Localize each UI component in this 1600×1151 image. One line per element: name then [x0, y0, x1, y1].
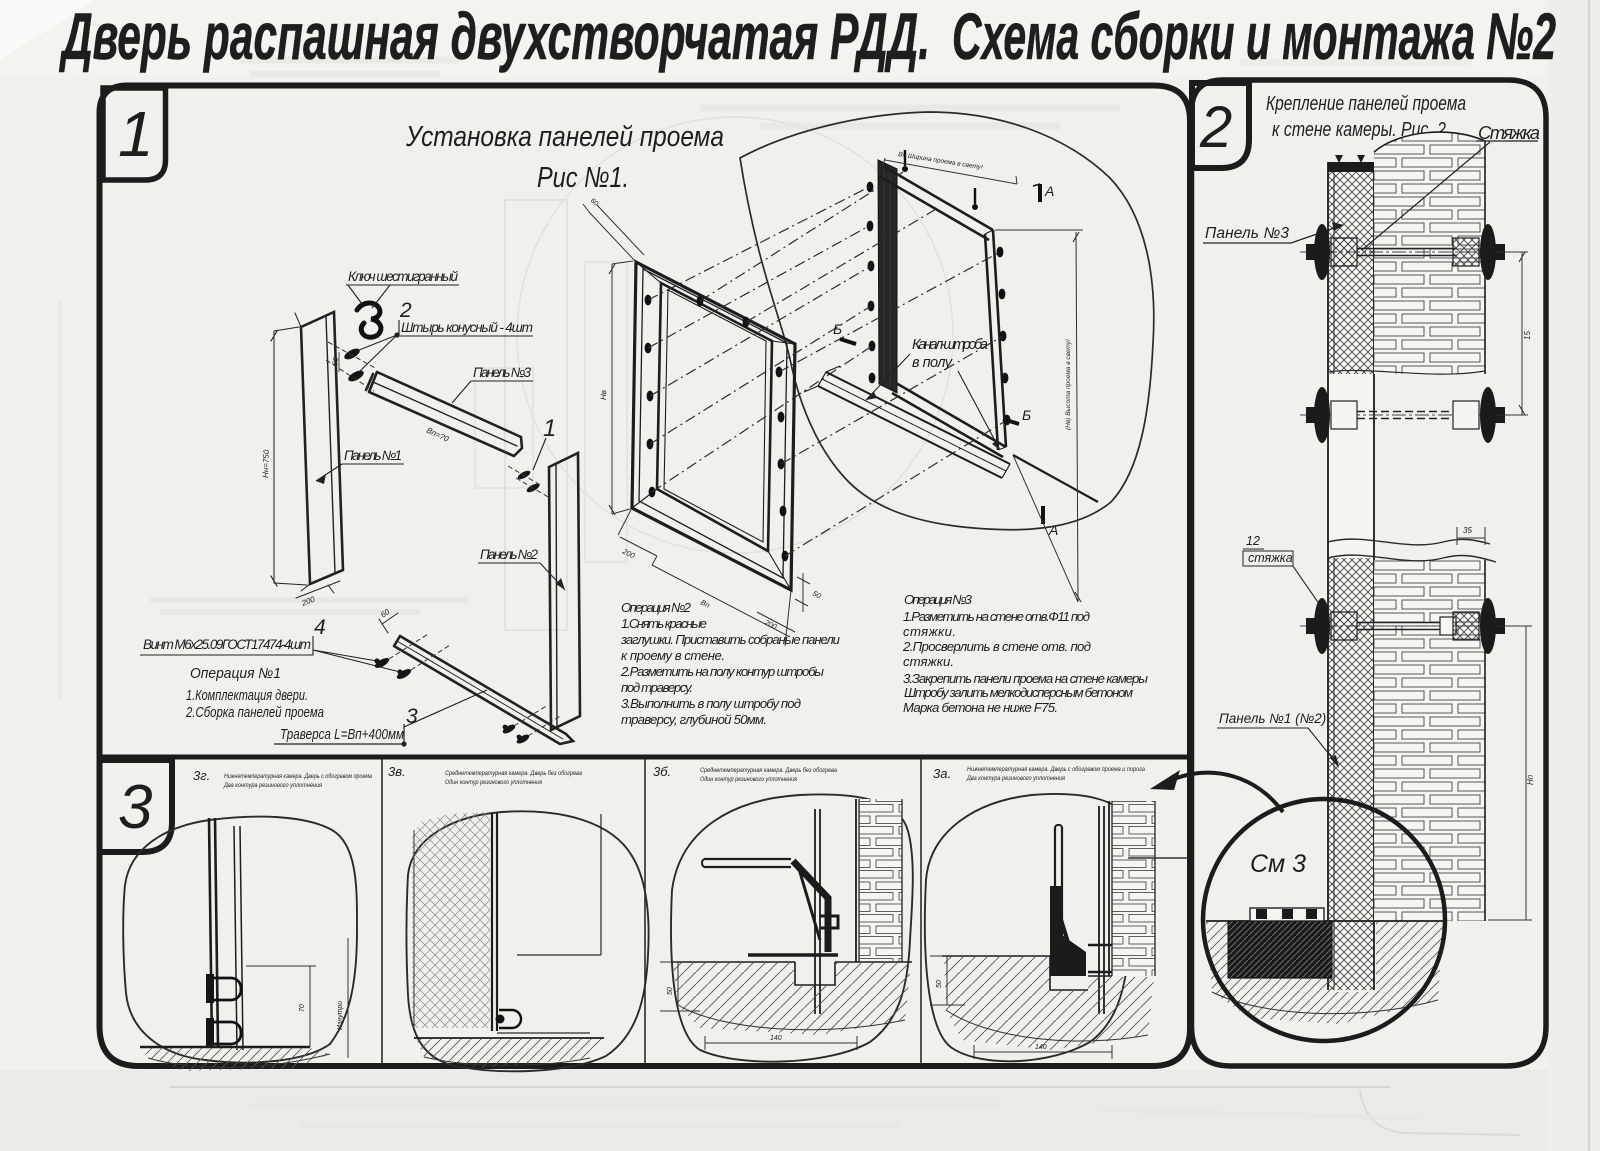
svg-text:1: 1 [118, 98, 154, 170]
svg-text:А: А [1048, 522, 1058, 538]
svg-text:1: 1 [543, 415, 556, 442]
svg-text:Нн=750: Нн=750 [261, 449, 271, 478]
svg-text:Панель №1: Панель №1 [344, 448, 402, 463]
svg-text:2: 2 [399, 299, 412, 322]
svg-text:Нп: Нп [1526, 774, 1535, 785]
svg-text:Нв: Нв [599, 390, 608, 400]
svg-text:Схема сборки и монтажа №2: Схема сборки и монтажа №2 [952, 0, 1556, 73]
svg-text:2.Разметить на полу контур штр: 2.Разметить на полу контур штробы [620, 664, 824, 679]
svg-text:к проему в стене.: к проему в стене. [621, 648, 725, 663]
svg-text:в полу: в полу [912, 355, 953, 371]
svg-text:Два контура резинового уплотне: Два контура резинового уплотнения [966, 775, 1065, 782]
svg-text:Б: Б [1022, 407, 1031, 423]
svg-text:Панель №2: Панель №2 [480, 547, 538, 562]
svg-text:50: 50 [936, 980, 943, 988]
svg-text:Стяжка: Стяжка [1478, 122, 1540, 143]
svg-text:Нижнетемпературная камера. Две: Нижнетемпературная камера. Дверь с обогр… [967, 765, 1145, 773]
svg-text:Ключ шестигранный: Ключ шестигранный [348, 269, 458, 284]
svg-text:2.Сборка панелей проема: 2.Сборка панелей проема [185, 705, 324, 721]
svg-text:Панель №3: Панель №3 [1205, 225, 1289, 242]
svg-text:стяжки.: стяжки. [903, 624, 956, 639]
svg-text:1.Комплектация двери.: 1.Комплектация двери. [186, 688, 308, 704]
svg-text:3б.: 3б. [653, 764, 671, 779]
svg-text:Винт М6х25.09ГОСТ17474-4шт: Винт М6х25.09ГОСТ17474-4шт [143, 637, 311, 652]
svg-text:А: А [1044, 183, 1054, 199]
svg-text:стяжка: стяжка [1248, 551, 1293, 565]
svg-text:70: 70 [299, 1004, 306, 1012]
svg-text:Операция №3: Операция №3 [904, 592, 973, 607]
svg-text:Среднетемпературная камера. Дв: Среднетемпературная камера. Дверь без об… [700, 766, 837, 774]
svg-text:3а.: 3а. [933, 766, 951, 781]
svg-text:50: 50 [667, 987, 674, 995]
svg-text:См 3: См 3 [1250, 850, 1306, 878]
svg-text:Рис №1.: Рис №1. [537, 162, 629, 194]
svg-text:Траверса L=Вп+400мм: Траверса L=Вп+400мм [280, 727, 404, 743]
svg-text:2: 2 [1199, 95, 1232, 160]
svg-text:3.Выполнить в полу штробу под: 3.Выполнить в полу штробу под [621, 696, 801, 711]
svg-text:Панель №1 (№2): Панель №1 (№2) [1219, 711, 1326, 726]
svg-text:3в.: 3в. [388, 764, 406, 779]
svg-text:Марка бетона не ниже F75.: Марка бетона не ниже F75. [903, 700, 1058, 715]
svg-text:Нижнетемпературная камера. Две: Нижнетемпературная камера. Дверь с обогр… [224, 772, 372, 780]
svg-text:140: 140 [1035, 1044, 1047, 1051]
svg-text:2.Просверлить в стене отв.: 2.Просверлить в стене отв. под [902, 639, 1091, 654]
svg-text:12: 12 [1246, 534, 1260, 548]
svg-text:Операция №2: Операция №2 [621, 600, 692, 615]
svg-text:140: 140 [770, 1035, 782, 1042]
svg-text:Штырь конусный - 4шт: Штырь конусный - 4шт [401, 320, 533, 335]
svg-text:Штробу залить мелкодисперсным: Штробу залить мелкодисперсным бетоном [904, 685, 1133, 700]
svg-text:4: 4 [314, 616, 326, 639]
svg-text:3: 3 [406, 705, 418, 728]
svg-text:1.Снять красные: 1.Снять красные [621, 616, 707, 631]
svg-text:3: 3 [118, 773, 152, 842]
svg-text:Изнутри: Изнутри [337, 1001, 344, 1030]
svg-text:Канал-штроба: Канал-штроба [912, 337, 988, 353]
svg-text:Б: Б [833, 321, 842, 337]
svg-text:35: 35 [1463, 526, 1472, 535]
svg-text:1.Разметить на стене отв.Ф11 п: 1.Разметить на стене отв.Ф11 под [903, 609, 1090, 624]
svg-text:Крепление панелей проема: Крепление панелей проема [1266, 93, 1466, 115]
svg-text:3.Закрепить панели проема на с: 3.Закрепить панели проема на стене камер… [903, 671, 1148, 686]
svg-text:заглушки. Приставить собраные: заглушки. Приставить собраные панели [620, 632, 841, 647]
svg-text:Один контур резинового уплотне: Один контур резинового уплотнения [700, 775, 797, 783]
svg-text:(Нв) Высота проема в свету!: (Нв) Высота проема в свету! [1065, 339, 1072, 430]
svg-text:стяжки.: стяжки. [903, 654, 954, 669]
svg-text:Операция №1: Операция №1 [190, 666, 281, 682]
svg-text:Панель №3: Панель №3 [473, 365, 531, 380]
svg-text:траверсу, глубиной 50мм.: траверсу, глубиной 50мм. [621, 712, 767, 727]
svg-text:под траверсу.: под траверсу. [621, 680, 693, 695]
svg-text:Один контур резинового уплотне: Один контур резинового уплотнения [445, 778, 542, 786]
svg-text:Два контура резинового уплотне: Два контура резинового уплотнения [223, 782, 322, 789]
svg-text:Среднетемпературная камера. Дв: Среднетемпературная камера. Дверь без об… [445, 769, 582, 777]
svg-text:3г.: 3г. [193, 768, 210, 783]
svg-text:15: 15 [1523, 331, 1532, 340]
svg-text:Дверь распашная двухстворчатая: Дверь распашная двухстворчатая РДД. [59, 0, 930, 73]
svg-text:Установка панелей проема: Установка панелей проема [405, 121, 724, 153]
